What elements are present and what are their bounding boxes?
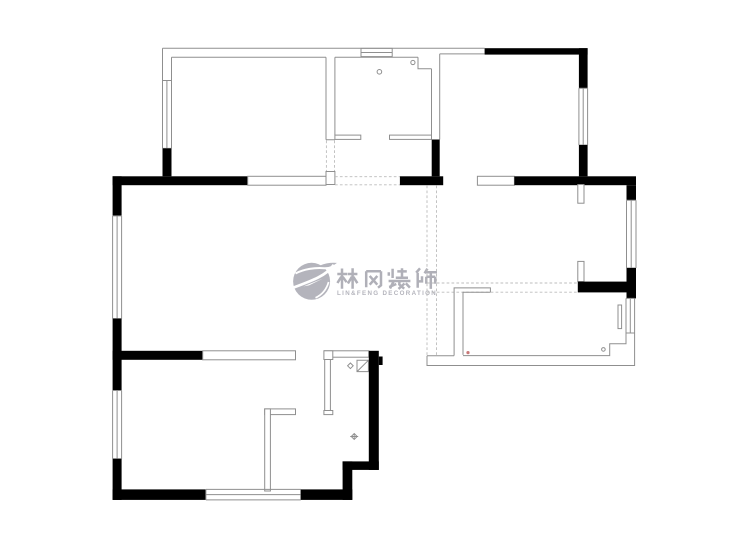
svg-text:LIN&FENG DECORATION: LIN&FENG DECORATION [337,290,437,297]
